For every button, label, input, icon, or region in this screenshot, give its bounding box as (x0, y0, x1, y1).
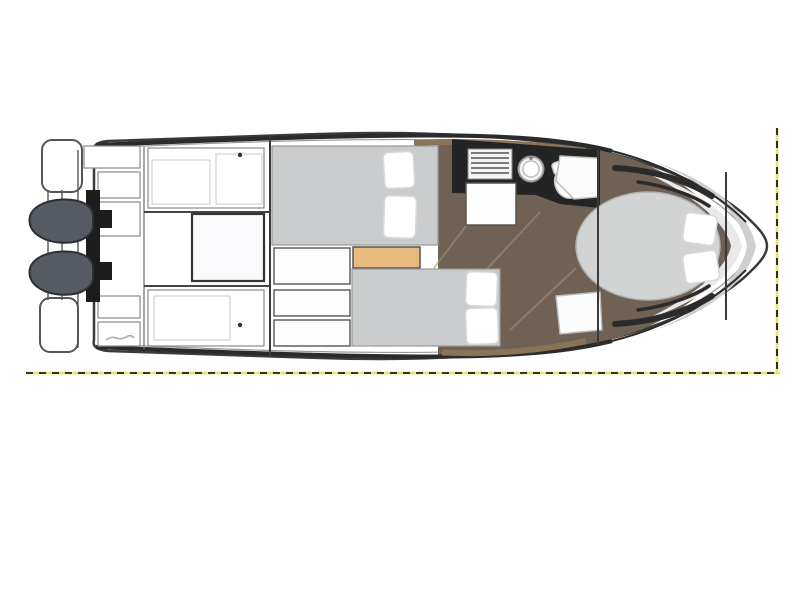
guest-cabin (352, 269, 500, 346)
sink-faucet (529, 156, 533, 160)
starboard-engine (29, 251, 93, 294)
mid-cabin-dresser (274, 248, 350, 284)
pillow (465, 271, 497, 306)
engine-mount (98, 262, 112, 280)
steps (274, 290, 350, 316)
cockpit-table (192, 214, 264, 281)
cockpit-locker (98, 172, 140, 198)
deck-fitting-dot (238, 153, 242, 157)
deck-fitting-dot (238, 323, 242, 327)
pillow (383, 151, 415, 189)
cockpit-seating (148, 290, 264, 346)
fridge-cabinet (466, 183, 516, 225)
pillow (383, 195, 416, 238)
steps (274, 320, 350, 346)
pillow (682, 250, 720, 284)
cockpit-locker (98, 296, 140, 318)
bow-cabinet-bottom (556, 292, 602, 334)
bench-seat (353, 247, 420, 268)
cockpit-locker (98, 322, 140, 346)
cockpit-seating (148, 148, 264, 208)
pillow (465, 307, 498, 344)
port-engine (29, 199, 93, 242)
pillow (682, 212, 718, 246)
swim-platform (40, 298, 78, 352)
floorplan-canvas (0, 0, 800, 600)
cockpit-locker (84, 146, 140, 168)
swim-platform (42, 140, 82, 192)
galley-sink-bowl (523, 161, 539, 177)
yacht-floorplan-image (0, 0, 800, 600)
engine-mount (98, 210, 112, 228)
